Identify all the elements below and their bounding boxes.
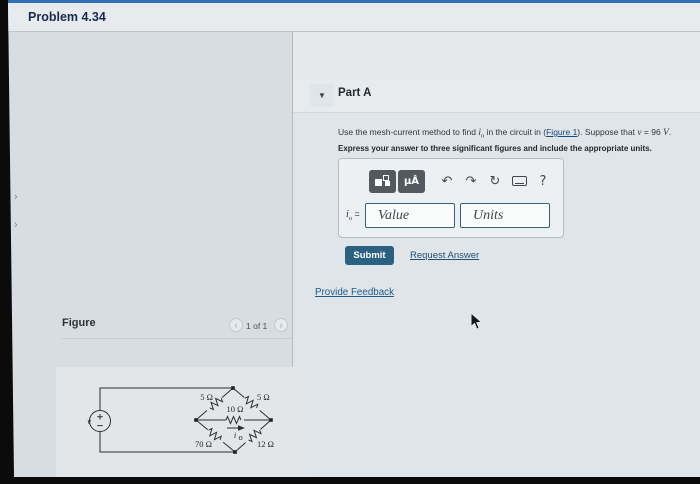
- answer-entry-box: μÅ ↶ ↷ ↻ ? io =: [338, 158, 564, 238]
- statement-text: in the circuit in (: [484, 127, 546, 137]
- node-right: [269, 418, 273, 422]
- chevron-left-icon: ‹: [235, 320, 238, 330]
- provide-feedback-link[interactable]: Provide Feedback: [315, 287, 394, 298]
- resistor-zigzag-middle: [226, 417, 241, 424]
- node-left: [194, 418, 198, 422]
- resistor-label-top-right: 5 Ω: [257, 392, 270, 402]
- current-label-i: i: [234, 430, 237, 440]
- problem-title: Problem 4.34: [28, 3, 106, 31]
- resistor-label-bottom-left: 70 Ω: [195, 439, 212, 449]
- answer-variable-label: io =: [346, 209, 360, 222]
- part-a-title: Part A: [338, 87, 371, 99]
- problem-header: Problem 4.34: [8, 3, 700, 32]
- plus-sign-icon: [97, 414, 102, 419]
- mouse-cursor-icon: [470, 312, 483, 331]
- current-label-sub: o: [239, 432, 243, 442]
- answer-format-instruction: Express your answer to three significant…: [338, 144, 698, 153]
- equation-template-button[interactable]: [369, 170, 396, 193]
- units-palette-button[interactable]: μÅ: [398, 170, 425, 193]
- template-icon: [375, 175, 390, 188]
- part-a-collapse-button[interactable]: ▼: [310, 84, 334, 107]
- figure-section-label: Figure: [62, 317, 96, 329]
- app-screen: Problem 4.34 › › ▼ Part A Use the mesh-c…: [0, 0, 700, 484]
- figure-divider: [62, 338, 292, 339]
- triangle-down-icon: ▼: [318, 91, 326, 100]
- source-label: v: [87, 416, 91, 426]
- value-input[interactable]: [365, 203, 455, 228]
- keyboard-shortcuts-button[interactable]: [509, 170, 529, 193]
- expand-panel-chevron-2[interactable]: ›: [14, 220, 18, 230]
- redo-button[interactable]: ↷: [461, 170, 481, 193]
- figure-prev-button[interactable]: ‹: [229, 318, 243, 332]
- circuit-diagram: v 5 Ω 5 Ω 10 Ω 70 Ω 12 Ω i o: [60, 372, 310, 477]
- help-button[interactable]: ?: [533, 170, 553, 193]
- figure-next-button[interactable]: ›: [274, 318, 288, 332]
- undo-button[interactable]: ↶: [437, 170, 457, 193]
- units-input[interactable]: [460, 203, 550, 228]
- expand-panel-chevron-1[interactable]: ›: [14, 192, 18, 202]
- node-top: [231, 386, 235, 390]
- figure-page-indicator: 1 of 1: [246, 321, 267, 331]
- redo-icon: ↷: [466, 174, 477, 189]
- voltage-source-icon: [90, 411, 111, 432]
- statement-text: Use the mesh-current method to find: [338, 127, 478, 137]
- problem-statement: Use the mesh-current method to find io i…: [338, 127, 698, 140]
- help-icon: ?: [540, 174, 547, 189]
- resistor-label-middle: 10 Ω: [227, 404, 244, 414]
- chevron-right-icon: ›: [280, 320, 283, 330]
- answer-equals: =: [352, 209, 360, 219]
- statement-text: = 96: [642, 127, 664, 137]
- request-answer-link[interactable]: Request Answer: [410, 250, 479, 261]
- undo-icon: ↶: [442, 174, 453, 189]
- reset-button[interactable]: ↻: [485, 170, 505, 193]
- resistor-label-top-left: 5 Ω: [200, 392, 213, 402]
- node-bottom: [233, 450, 237, 454]
- circuit-wires: [90, 388, 272, 452]
- submit-button[interactable]: Submit: [345, 246, 394, 265]
- statement-text: .: [669, 127, 671, 137]
- resistor-label-bottom-right: 12 Ω: [257, 439, 274, 449]
- keyboard-icon: [512, 176, 527, 186]
- reset-icon: ↻: [490, 174, 501, 189]
- figure-1-link[interactable]: Figure 1: [546, 127, 577, 137]
- part-panel-top: [293, 32, 700, 79]
- bottom-wire: [100, 432, 235, 453]
- statement-text: ). Suppose that: [577, 127, 637, 137]
